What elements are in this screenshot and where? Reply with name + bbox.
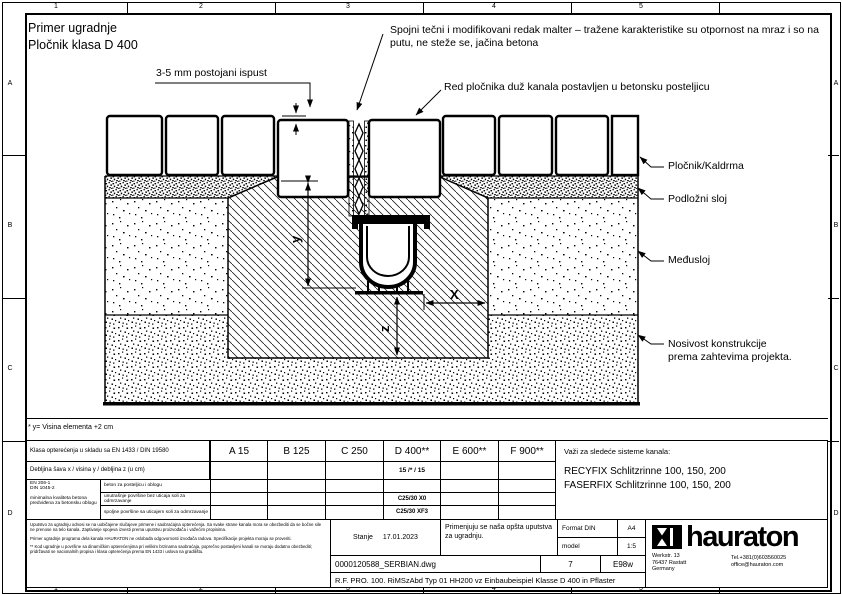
systems-box: Važi za sledeće sisteme kanala: RECYFIX … [555,440,828,520]
label-interlayer: Međusloj [668,254,710,267]
frame-tick [2,441,25,442]
table-cell [383,479,441,493]
table-cell [325,479,384,493]
load-class-a15: A 15 [210,440,268,462]
label-bearing: Nosivost konstrukcije prema zahtevima pr… [668,338,792,364]
frame-tick [127,588,128,593]
concrete-d400-value: C25/30 XF3 [383,505,441,520]
table-cell [210,479,268,493]
drawing-sheet: 1 2 3 4 5 1 2 3 4 5 A B C D A B C D [0,0,842,595]
table-cell [498,461,556,480]
table-cell [210,461,268,480]
concrete-row-label: beton za posteljicu i oblogu [100,479,211,493]
manufacturer-address: Werkstr. 13 76437 Rastatt Germany [652,553,686,573]
frame-tick [719,588,720,593]
revision-code-cell: E98w [600,555,646,573]
frame-tick [423,588,424,593]
concrete-row-label: spoljne površine sa uticajem soli za odm… [100,505,211,520]
table-cell [498,505,556,520]
frame-tick [571,588,572,593]
table-cell [440,505,499,520]
label-pavement: Pločnik/Kaldrma [668,160,744,173]
drawing-title: Primer ugradnje Pločnik klasa D 400 [28,20,138,53]
table-cell [267,479,326,493]
load-class-c250: C 250 [325,440,384,462]
label-bearing-line2: prema zahtevima projekta. [668,351,792,364]
label-bedding: Podložni sloj [668,193,727,206]
footnote: * y= Visina elementa +2 cm [28,424,113,431]
annotation-paver-row: Red pločnika duž kanala postavljen u bet… [444,81,710,94]
norm-note: minimalna kvaliteta betona predviđena za… [30,496,100,507]
file-name-cell: 0000120588_SERBIAN.dwg [330,555,541,573]
manufacturer-contact: Tel.+381(0)603560025 office@hauraton.com [731,555,786,568]
drawing-title-line1: Primer ugradnje [28,20,138,37]
table-cell [440,492,499,506]
disclaimer-box: Uputstvo za ugradnju odnosi se na uobiča… [26,519,331,588]
table-cell [440,479,499,493]
manufacturer-phone: Tel.+381(0)603560025 [731,555,786,562]
deep-paver-left [278,120,348,197]
norm-cell: EN 206-1 DIN 1045-2 minimalna kvaliteta … [26,479,101,520]
annotation-gap: 3-5 mm postojani ispust [156,67,267,80]
manufacturer-email: office@hauraton.com [731,562,786,569]
format-label: Format DIN [557,519,618,538]
hauraton-wordmark: hauraton [686,524,798,550]
frame-tick [275,588,276,593]
table-cell [267,461,326,480]
load-class-f900: F 900** [498,440,556,462]
concrete-row-label: unutrašnje površine bez uticaja soli za … [100,492,211,506]
table-cell [325,492,384,506]
dims-d400-value: 15 /* / 15 [383,461,441,480]
separator-line [26,418,828,419]
table-cell [325,461,384,480]
annotation-joint-mortar: Spojni tečni i modifikovani redak malter… [390,24,826,50]
hauraton-logo-icon [652,525,682,549]
formation-bottom-line [103,402,640,406]
load-class-b125: B 125 [267,440,326,462]
table-cell [210,492,268,506]
load-class-d400: D 400** [383,440,441,462]
table-cell [498,479,556,493]
deep-paver-right [369,120,440,197]
scale-label: model [557,537,618,556]
system-item: FASERFIX Schlitzrinne 100, 150, 200 [564,479,731,493]
load-class-e600: E 600** [440,440,499,462]
manufacturer-block: hauraton Werkstr. 13 76437 Rastatt Germa… [645,519,828,588]
load-class-row-label: Klasa opterećenja u skladu sa EN 1433 / … [26,440,210,462]
system-item: RECYFIX Schlitzrinne 100, 150, 200 [564,465,726,479]
frame-tick [828,441,839,442]
disclaimer-paragraph: Primer ugradnje programa dela kanala HAU… [30,536,327,541]
dim-label-x: X [450,287,459,302]
concrete-d400-value: C25/30 X0 [383,492,441,506]
status-cell: Stanje 17.01.2023 [330,519,441,556]
grid-row-label: D [830,509,842,518]
sheet-number-cell: 7 [540,555,601,573]
status-label: Stanje [353,534,373,541]
format-value: A4 [617,519,646,538]
note-cell: Primenjuju se naša opšta uputstva za ugr… [440,519,558,556]
norm-line2: DIN 1045-2 [30,486,55,491]
dim-label-y: y [288,235,303,243]
table-cell [440,461,499,480]
scale-value: 1:5 [617,537,646,556]
disclaimer-paragraph: ** Kod ugradnje u površine sa dinamičkim… [30,544,327,555]
table-cell [498,492,556,506]
table-cell [325,505,384,520]
dim-label-z: z [377,325,392,332]
label-bearing-line1: Nosivost konstrukcije [668,338,792,351]
dims-row-label: Debljina šava x / visina y / debljina z … [26,461,210,480]
table-cell [267,492,326,506]
address-line: Germany [652,566,686,573]
table-cell [210,505,268,520]
doc-title-cell: R.F. PRO. 100. RiMSzAbd Typ 01 HH200 vz … [330,572,646,588]
drawing-title-line2: Pločnik klasa D 400 [28,37,138,54]
systems-heading: Važi za sledeće sisteme kanala: [564,447,670,456]
status-date: 17.01.2023 [383,534,418,541]
table-cell [267,505,326,520]
disclaimer-paragraph: Uputstvo za ugradnju odnosi se na uobiča… [30,522,327,533]
installation-cross-section-drawing: y z X [0,0,842,440]
grid-row-label: D [4,509,16,518]
slot-joint [349,121,369,216]
